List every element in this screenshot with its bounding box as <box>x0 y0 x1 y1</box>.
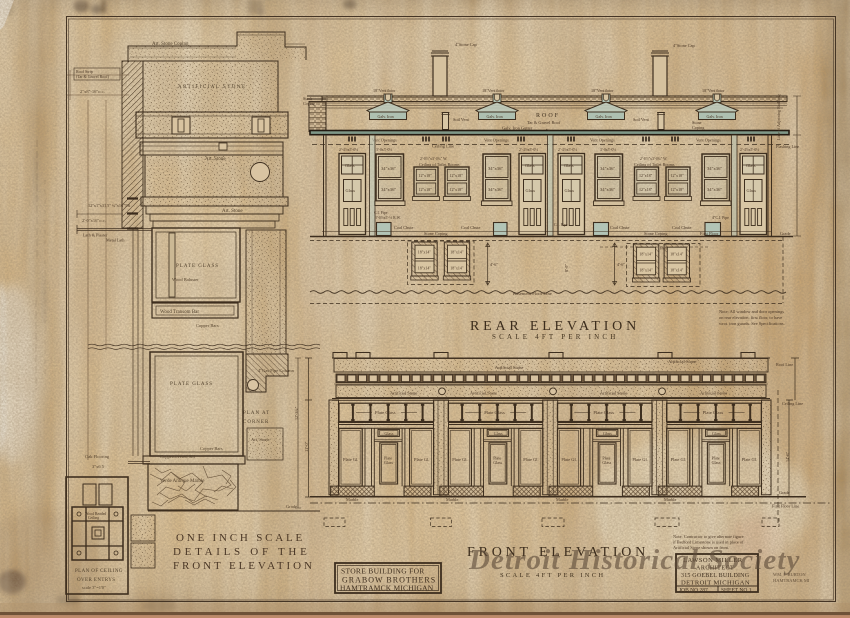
svg-text:Wood Transom Bar: Wood Transom Bar <box>160 310 199 315</box>
svg-text:Coal Chute: Coal Chute <box>394 225 414 230</box>
svg-text:Art. Stone: Art. Stone <box>251 437 270 442</box>
svg-text:3'-0x5'-0½: 3'-0x5'-0½ <box>600 148 616 152</box>
svg-text:2'-4½x5'-0½: 2'-4½x5'-0½ <box>339 148 358 152</box>
svg-text:Artificial Stone: Artificial Stone <box>495 365 523 370</box>
svg-text:Line of Adjoining Building: Line of Adjoining Building <box>776 93 781 140</box>
svg-text:PLATE GLASS: PLATE GLASS <box>170 382 213 387</box>
svg-text:wrot. iron guards. See Specifi: wrot. iron guards. See Specifications. <box>719 321 785 326</box>
svg-text:scale 3"=1'0": scale 3"=1'0" <box>82 585 106 590</box>
svg-text:Ceiling of Toilet Rooms: Ceiling of Toilet Rooms <box>419 162 460 167</box>
svg-text:4"Stone Cap: 4"Stone Cap <box>673 43 695 48</box>
svg-text:12"x1"x31.5" ¾"x16"TR: 12"x1"x31.5" ¾"x16"TR <box>88 203 130 208</box>
svg-text:Grade: Grade <box>780 231 791 236</box>
svg-text:OVER ENTRYS: OVER ENTRYS <box>77 578 115 583</box>
svg-text:4"Gas Pipe Column: 4"Gas Pipe Column <box>258 368 295 373</box>
svg-text:Stone Coping: Stone Coping <box>644 231 668 236</box>
svg-text:Stone Coping: Stone Coping <box>424 231 448 236</box>
svg-text:C.I. Pipe: C.I. Pipe <box>554 223 568 227</box>
svg-text:12'-3¾": 12'-3¾" <box>294 406 299 420</box>
svg-text:4'-6": 4'-6" <box>490 262 498 267</box>
svg-text:Note: All window and door open: Note: All window and door openings <box>719 309 784 314</box>
svg-text:Flashing Line: Flashing Line <box>776 144 799 149</box>
svg-text:JOB NO 287: JOB NO 287 <box>679 588 708 594</box>
svg-text:Detroit Historical Society: Detroit Historical Society <box>468 544 800 576</box>
svg-text:Coal Chute: Coal Chute <box>672 225 692 230</box>
svg-text:Ceiling of Toilet Rooms: Ceiling of Toilet Rooms <box>634 162 675 167</box>
svg-text:Wood Baluster: Wood Baluster <box>172 277 199 282</box>
svg-text:Coping: Coping <box>692 125 705 130</box>
svg-text:4'-6": 4'-6" <box>617 262 625 267</box>
svg-text:Basement Floor Line: Basement Floor Line <box>513 291 552 296</box>
svg-text:Marble: Marble <box>664 497 677 502</box>
svg-text:Lath & Plaster: Lath & Plaster <box>83 233 108 238</box>
svg-text:2'-0½"x3'-0¾" W.: 2'-0½"x3'-0¾" W. <box>420 157 447 161</box>
svg-text:3'-0x5'-0½: 3'-0x5'-0½ <box>376 148 392 152</box>
svg-text:2"x8"-16"o.c.: 2"x8"-16"o.c. <box>80 89 105 94</box>
svg-text:Vent Openings: Vent Openings <box>484 138 509 143</box>
svg-text:Coping: Coping <box>303 101 315 106</box>
svg-text:PLAN AT: PLAN AT <box>243 411 270 416</box>
svg-text:Ceiling Line: Ceiling Line <box>432 144 454 149</box>
svg-text:Coal Chute: Coal Chute <box>610 225 630 230</box>
svg-text:Coal Chute: Coal Chute <box>461 225 481 230</box>
svg-text:Marble: Marble <box>556 497 569 502</box>
svg-text:8'-0": 8'-0" <box>564 264 569 272</box>
svg-text:18"Ventilator: 18"Ventilator <box>591 88 614 93</box>
svg-text:Artificial Stone: Artificial Stone <box>668 359 696 364</box>
svg-text:SHEET NO 1: SHEET NO 1 <box>721 588 752 594</box>
svg-text:Artificial Stone: Artificial Stone <box>700 391 727 396</box>
svg-text:Metal Lath: Metal Lath <box>106 238 125 243</box>
svg-text:ARTIFICIAL STONE: ARTIFICIAL STONE <box>178 85 247 90</box>
svg-text:4"Stone Cap: 4"Stone Cap <box>455 42 477 47</box>
svg-text:2'-4½x5'-0½: 2'-4½x5'-0½ <box>558 148 577 152</box>
svg-text:Artificial Stone: Artificial Stone <box>470 391 497 396</box>
svg-text:2'-0½"x3'-0¾" W.: 2'-0½"x3'-0¾" W. <box>640 157 667 161</box>
svg-text:2'-0"x16"o.c.: 2'-0"x16"o.c. <box>82 218 106 223</box>
svg-text:18"Ventilator: 18"Ventilator <box>702 88 725 93</box>
svg-text:14'-6": 14'-6" <box>785 452 790 462</box>
svg-text:PLATE GLASS: PLATE GLASS <box>176 264 219 269</box>
svg-text:Verde Antique Marble: Verde Antique Marble <box>160 479 205 484</box>
svg-text:18"Ventilator: 18"Ventilator <box>482 88 505 93</box>
svg-text:C.I. Pipe: C.I. Pipe <box>374 211 388 215</box>
svg-text:Oak Flooring: Oak Flooring <box>85 454 110 459</box>
svg-text:DETAILS OF THE: DETAILS OF THE <box>173 546 311 558</box>
svg-text:Vent Openings: Vent Openings <box>590 138 615 143</box>
svg-text:3'-0½x5'-½ R.W.: 3'-0½x5'-½ R.W. <box>375 216 401 220</box>
svg-text:Ceiling: Ceiling <box>88 516 99 520</box>
svg-text:3"x6.5: 3"x6.5 <box>92 464 105 469</box>
svg-text:Tar & Gravel Roof: Tar & Gravel Roof <box>527 120 561 125</box>
svg-text:REAR ELEVATION: REAR ELEVATION <box>470 319 640 334</box>
svg-text:Roof Line: Roof Line <box>776 362 793 367</box>
svg-text:Marble: Marble <box>446 497 459 502</box>
svg-text:DETROIT MICHIGAN: DETROIT MICHIGAN <box>681 580 750 587</box>
svg-text:Grade: Grade <box>779 490 790 495</box>
svg-text:STORE BUILDING FOR: STORE BUILDING FOR <box>341 567 425 576</box>
svg-text:Note: Contractor to give alter: Note: Contractor to give alternate figur… <box>673 534 744 539</box>
svg-text:FRONT ELEVATION: FRONT ELEVATION <box>173 560 315 572</box>
svg-text:2'-4½x5'-0½: 2'-4½x5'-0½ <box>740 148 759 152</box>
svg-text:Art. Stone Coping: Art. Stone Coping <box>152 42 189 47</box>
svg-text:Art. Stone: Art. Stone <box>205 157 226 162</box>
svg-text:SCALE 4FT PER INCH: SCALE 4FT PER INCH <box>492 333 619 341</box>
svg-text:2'-4½x5'-0½: 2'-4½x5'-0½ <box>519 148 538 152</box>
svg-text:First Floor: First Floor <box>700 231 719 236</box>
svg-text:HAMTRAMCK MICHIGAN: HAMTRAMCK MICHIGAN <box>340 584 434 593</box>
svg-text:Galv. Iron Gutter: Galv. Iron Gutter <box>502 126 533 131</box>
svg-text:Artificial Stone: Artificial Stone <box>390 391 417 396</box>
svg-text:Soil Vent: Soil Vent <box>633 117 650 122</box>
svg-text:(Tar & Gravel Roof): (Tar & Gravel Roof) <box>76 74 110 79</box>
svg-text:11'-0": 11'-0" <box>304 441 309 452</box>
svg-text:HAMTRAMCK MI: HAMTRAMCK MI <box>773 578 810 583</box>
svg-text:ONE INCH SCALE: ONE INCH SCALE <box>176 532 305 544</box>
svg-text:First Floor Line: First Floor Line <box>772 504 799 509</box>
svg-text:18"Ventilator: 18"Ventilator <box>373 88 396 93</box>
svg-text:ROOF: ROOF <box>536 113 560 119</box>
svg-text:Marble: Marble <box>346 497 359 502</box>
svg-text:Copper Bars: Copper Bars <box>196 323 219 328</box>
svg-text:Artificial Stone: Artificial Stone <box>600 391 627 396</box>
svg-text:Vent Openings: Vent Openings <box>372 138 397 143</box>
svg-text:CORNER: CORNER <box>243 420 269 425</box>
svg-text:Grade: Grade <box>286 504 297 509</box>
svg-text:4"C.I. Pipe: 4"C.I. Pipe <box>712 216 729 220</box>
svg-text:Vent Openings: Vent Openings <box>696 138 721 143</box>
svg-text:Art. Stone: Art. Stone <box>222 209 243 214</box>
svg-text:Soil Vent: Soil Vent <box>453 117 470 122</box>
svg-text:PLAN OF CEILING: PLAN OF CEILING <box>75 569 123 574</box>
svg-text:Ceiling Line: Ceiling Line <box>782 401 803 406</box>
svg-text:Copper Bars: Copper Bars <box>200 446 223 451</box>
